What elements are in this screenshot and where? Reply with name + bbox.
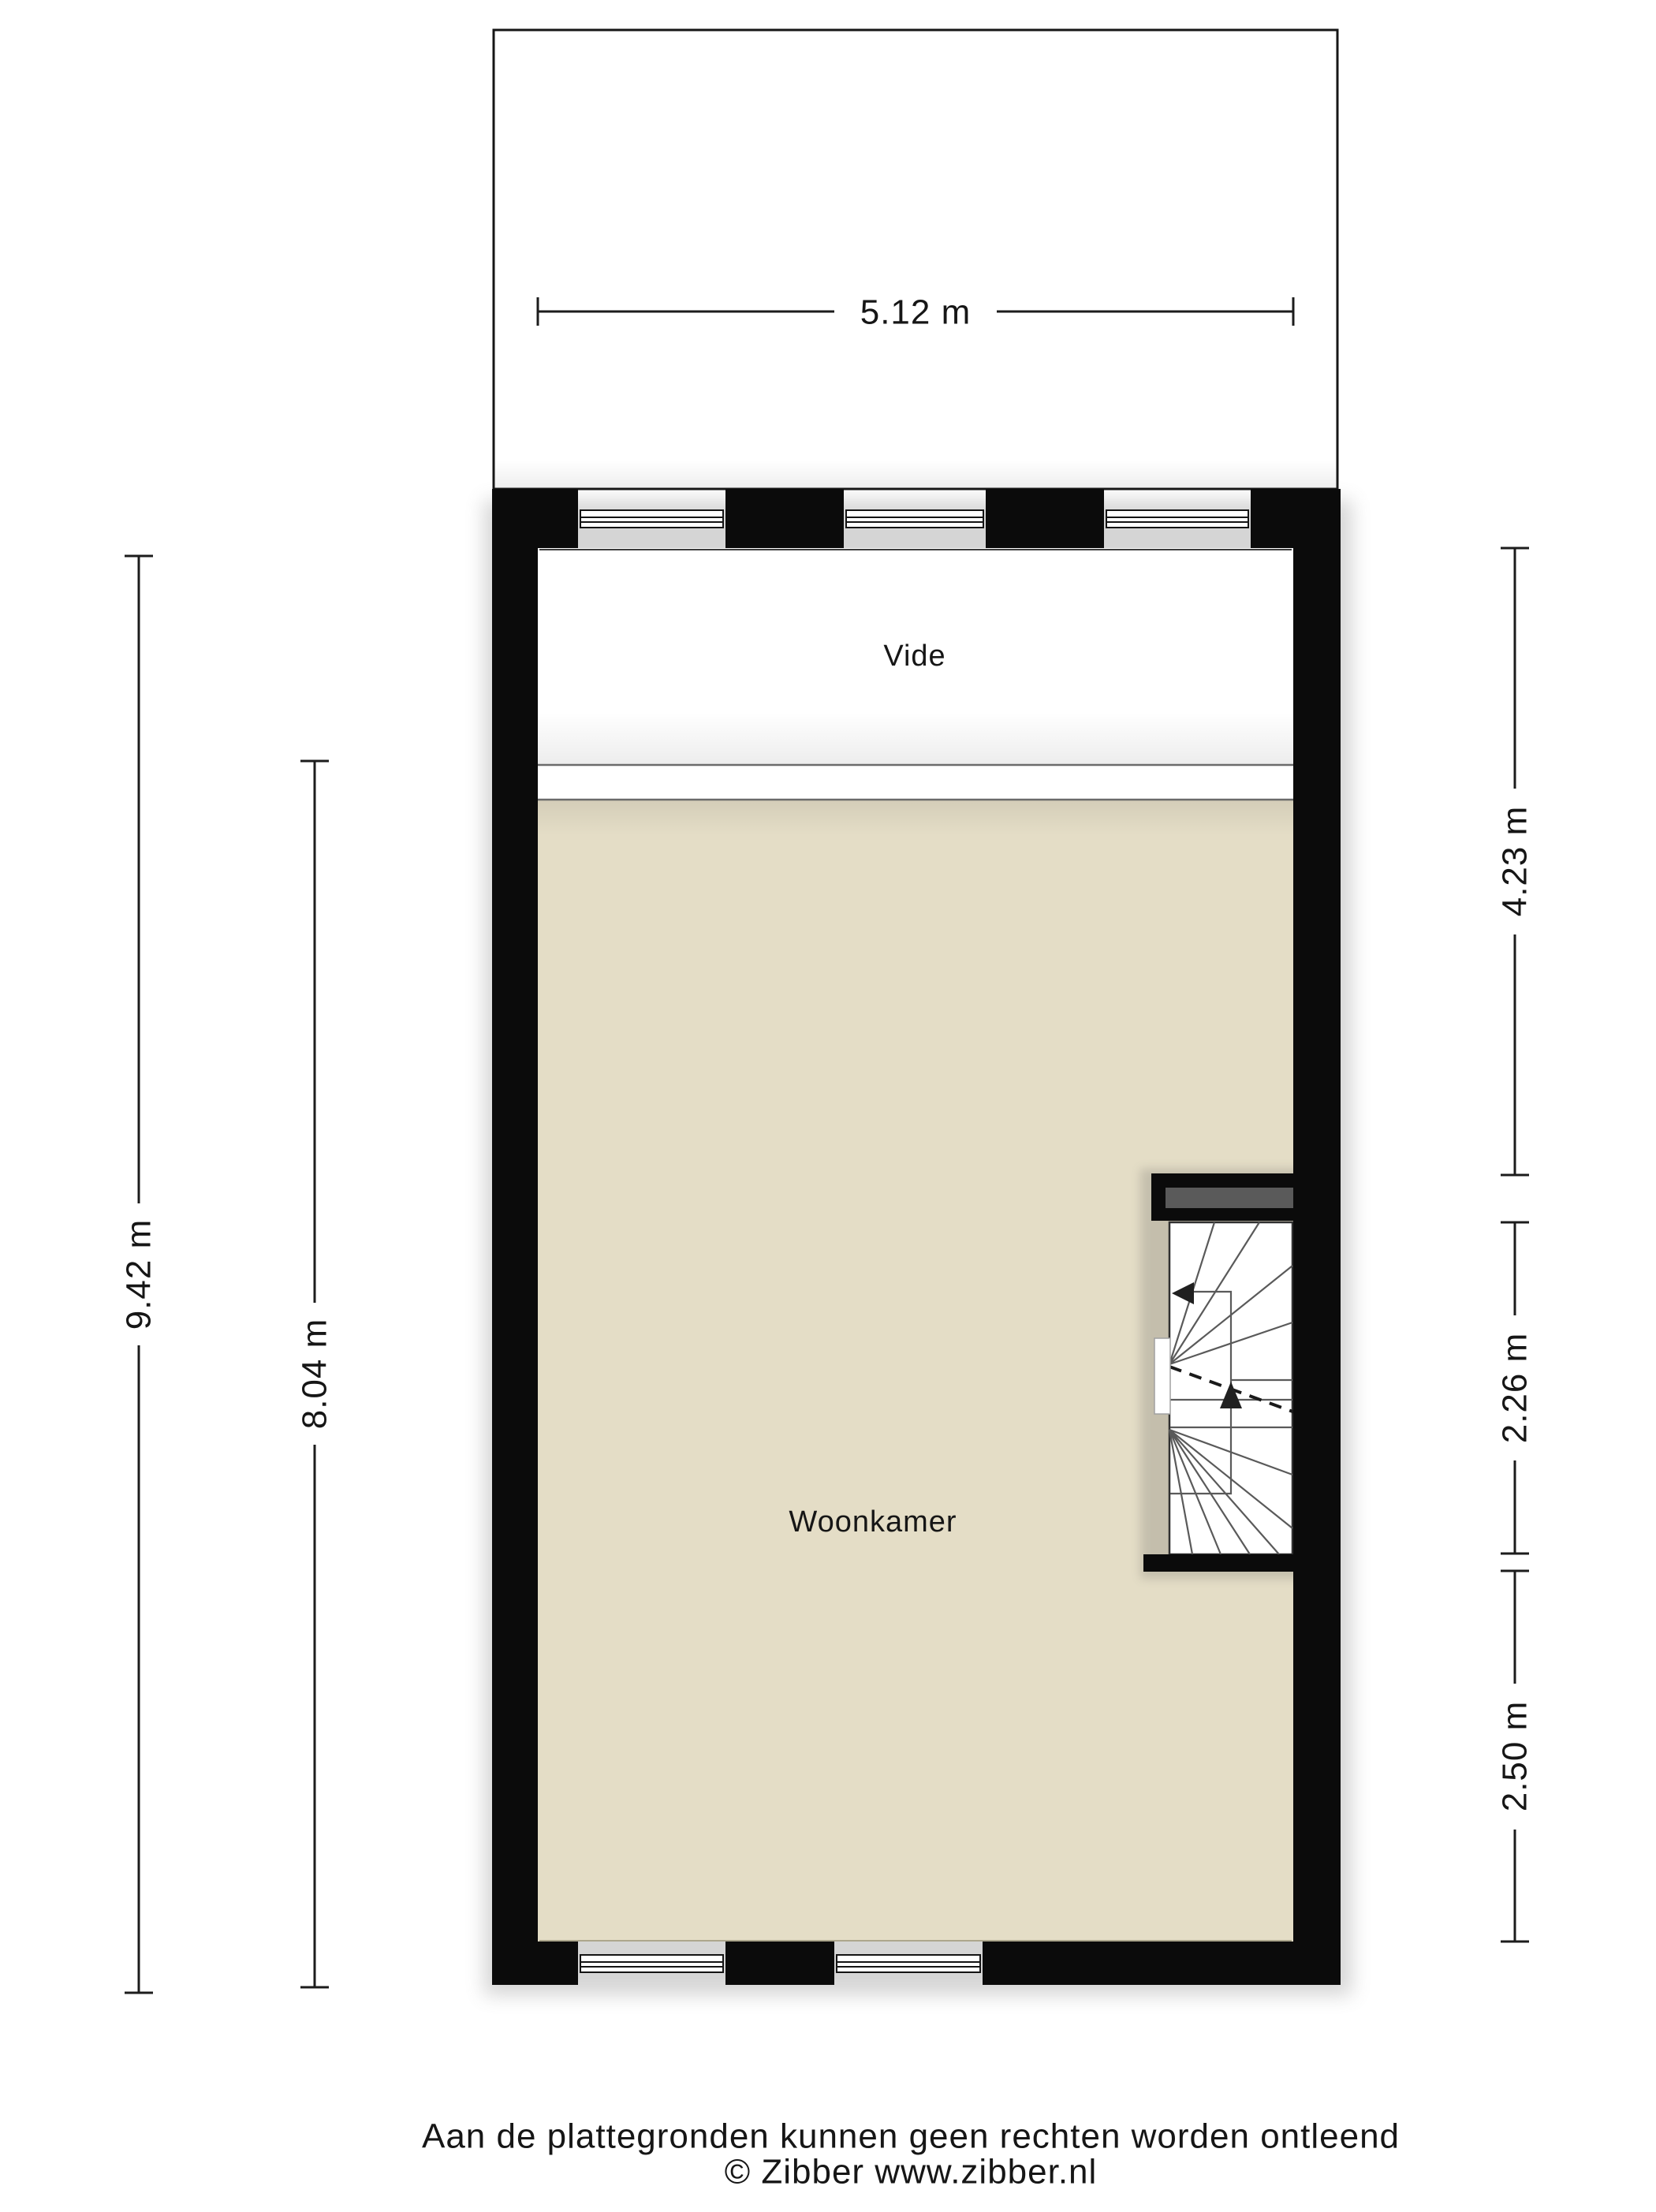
footer-copyright: © Zibber www.zibber.nl — [725, 2153, 1098, 2191]
wall-left — [492, 489, 538, 1985]
vide-floor-shade — [538, 712, 1293, 764]
wall-top-segment — [725, 489, 844, 548]
window-icon — [580, 510, 723, 528]
dim-right-middle-label: 2.26 m — [1496, 1333, 1535, 1444]
windows-top — [580, 510, 1248, 528]
wall-right — [1293, 489, 1341, 1985]
dim-right-middle: 2.26 m — [1496, 1222, 1535, 1554]
room-label-vide: Vide — [883, 640, 945, 673]
window-icon — [1106, 510, 1248, 528]
wall-top-segment — [986, 489, 1104, 548]
vide-woonkamer-railing — [538, 764, 1293, 800]
room-label-woonkamer: Woonkamer — [789, 1505, 957, 1539]
dim-right-upper: 4.23 m — [1496, 548, 1535, 1175]
wall-top-segment — [492, 489, 578, 548]
roof-edge-shade — [495, 461, 1336, 487]
wall-bottom-segment — [725, 1942, 834, 1985]
dim-right-lower-label: 2.50 m — [1496, 1701, 1535, 1812]
staircase — [1140, 1169, 1301, 1579]
stair-door-opening — [1154, 1338, 1170, 1414]
stair-landing-wall — [1151, 1173, 1293, 1221]
dim-right-lower: 2.50 m — [1496, 1571, 1535, 1942]
dim-left-outer-label: 9.42 m — [120, 1219, 159, 1330]
floorplan-canvas: 5.12 m — [0, 0, 1656, 2208]
dim-top-width-label: 5.12 m — [860, 293, 972, 332]
dim-left-inner-label: 8.04 m — [296, 1319, 334, 1430]
window-icon — [846, 510, 983, 528]
footer-disclaimer: Aan de plattegronden kunnen geen rechten… — [422, 2117, 1400, 2156]
wall-bottom-segment — [983, 1942, 1341, 1985]
dim-left-inner: 8.04 m — [296, 761, 334, 1987]
roof-outline — [494, 30, 1337, 489]
wall-bottom-segment — [492, 1942, 578, 1985]
floorplan-page: 5.12 m — [0, 0, 1656, 2208]
dim-left-outer: 9.42 m — [120, 556, 159, 1993]
woonkamer-floor-shade — [538, 800, 1293, 835]
stair-stub-wall — [1143, 1554, 1293, 1572]
dim-right-upper-label: 4.23 m — [1496, 806, 1535, 917]
window-icon — [580, 1955, 723, 1972]
stair-beam — [1166, 1188, 1293, 1208]
window-icon — [837, 1955, 980, 1972]
wall-top-segment — [1251, 489, 1341, 548]
